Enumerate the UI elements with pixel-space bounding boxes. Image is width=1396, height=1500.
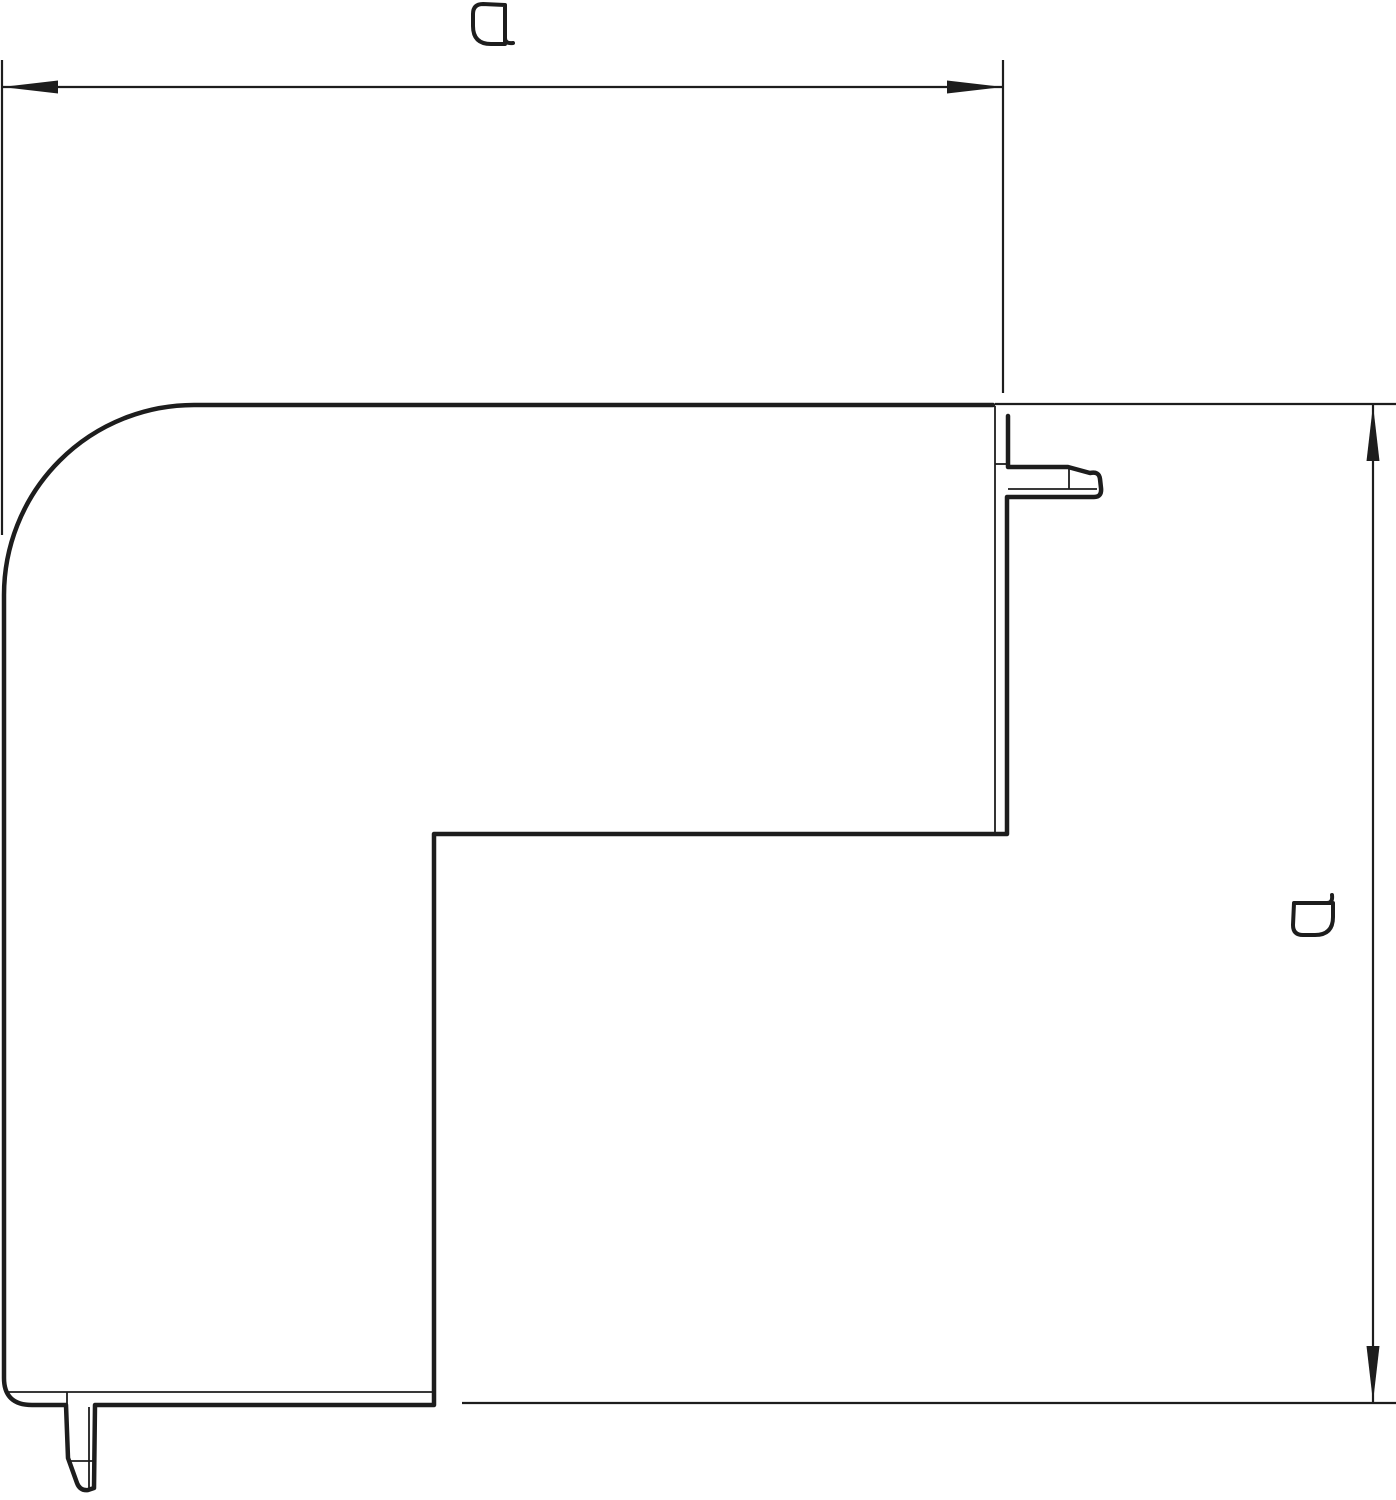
- part-profile-path: [4, 405, 1101, 1490]
- dimension-vertical-label-glyph: [1293, 895, 1333, 935]
- dimension-horizontal: [2, 4, 1003, 535]
- dimension-vertical: [462, 404, 1396, 1403]
- part-outline: [4, 405, 1101, 1490]
- dimension-horizontal-label-glyph: [473, 4, 513, 44]
- arrowhead-up: [1367, 405, 1380, 461]
- arrowhead-left: [2, 81, 58, 94]
- flat-corner-technical-drawing: [0, 0, 1396, 1500]
- drawing-canvas: a a: [0, 0, 1396, 1500]
- arrowhead-right: [947, 81, 1003, 94]
- arrowhead-down: [1367, 1346, 1380, 1402]
- part-detail-lines: [5, 406, 1097, 1488]
